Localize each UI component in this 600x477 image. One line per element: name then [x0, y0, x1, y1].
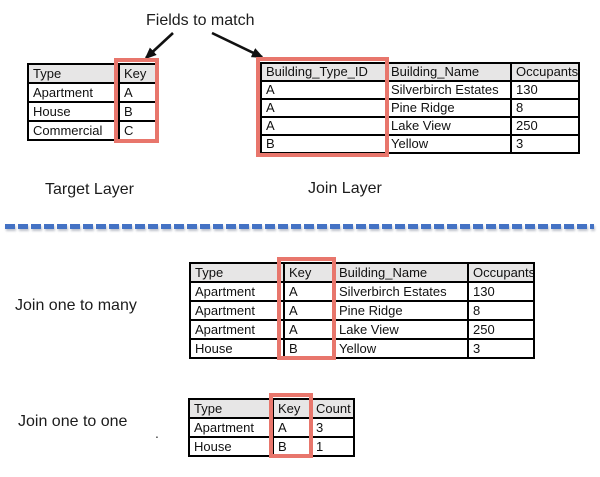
table-cell: 3	[511, 135, 579, 153]
column-header: Building_Name	[334, 263, 468, 282]
join-diagram-canvas: Fields to match TypeKeyApartmentAHouseBC…	[0, 0, 600, 477]
table-cell: Commercial	[28, 121, 119, 140]
table-cell: 250	[468, 320, 534, 339]
target-key-column-highlight	[114, 58, 159, 143]
table-cell: Pine Ridge	[334, 301, 468, 320]
table-cell: 130	[511, 81, 579, 99]
table-cell: Silverbirch Estates	[334, 282, 468, 301]
arrow-to-join-key-icon	[212, 33, 262, 57]
table-cell: Yellow	[334, 339, 468, 358]
table-cell: 250	[511, 117, 579, 135]
table-cell: Apartment	[189, 418, 273, 437]
column-header: Type	[28, 64, 119, 83]
join-one-to-many-label: Join one to many	[15, 296, 137, 315]
one-to-many-key-column-highlight	[277, 257, 336, 360]
join-key-column-highlight	[256, 57, 389, 157]
table-cell: Apartment	[190, 320, 284, 339]
table-cell: House	[28, 102, 119, 121]
arrow-to-target-key-icon	[146, 33, 173, 58]
one-to-one-key-column-highlight	[269, 393, 313, 458]
table-cell: 8	[468, 301, 534, 320]
column-header: Building_Name	[386, 63, 511, 81]
table-cell: Lake View	[334, 320, 468, 339]
column-header: Type	[189, 399, 273, 418]
table-cell: 8	[511, 99, 579, 117]
target-layer-label: Target Layer	[45, 180, 134, 199]
table-cell: 3	[468, 339, 534, 358]
table-cell: House	[189, 437, 273, 456]
table-row: HouseBYellow3	[190, 339, 534, 358]
stray-period-mark: .	[155, 424, 159, 443]
column-header: Occupants	[468, 263, 534, 282]
join-one-to-many-table: TypeKeyBuilding_NameOccupantsApartmentAS…	[189, 262, 535, 359]
table-row: ApartmentAPine Ridge8	[190, 301, 534, 320]
join-one-to-one-label: Join one to one	[18, 412, 127, 431]
column-header: Type	[190, 263, 284, 282]
table-cell: Silverbirch Estates	[386, 81, 511, 99]
table-cell: 130	[468, 282, 534, 301]
table-row: ApartmentASilverbirch Estates130	[190, 282, 534, 301]
table-cell: Apartment	[190, 282, 284, 301]
table-cell: 3	[311, 418, 354, 437]
table-cell: 1	[311, 437, 354, 456]
table-cell: Yellow	[386, 135, 511, 153]
table-cell: Lake View	[386, 117, 511, 135]
column-header: Occupants	[511, 63, 579, 81]
table-cell: Apartment	[28, 83, 119, 102]
section-divider-dashed-line	[5, 224, 594, 229]
column-header: Count	[311, 399, 354, 418]
join-layer-label: Join Layer	[308, 179, 382, 198]
table-cell: Pine Ridge	[386, 99, 511, 117]
header-row: TypeKeyBuilding_NameOccupants	[190, 263, 534, 282]
table-row: ApartmentALake View250	[190, 320, 534, 339]
table-cell: Apartment	[190, 301, 284, 320]
table-cell: House	[190, 339, 284, 358]
